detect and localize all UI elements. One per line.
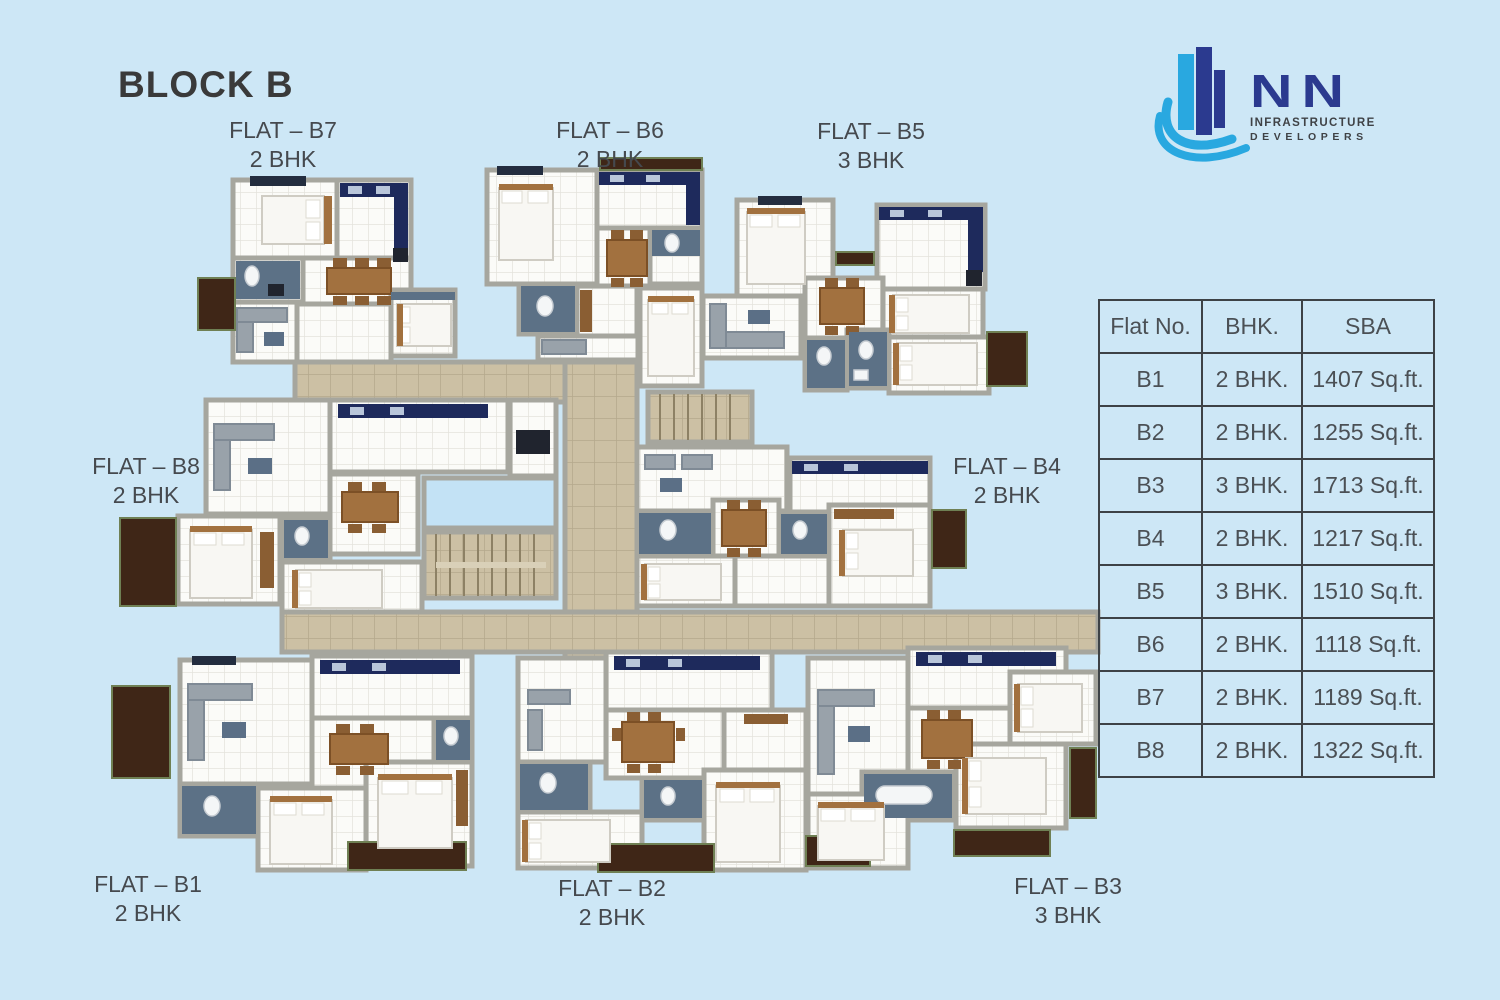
flat-b2-plan [518, 652, 806, 872]
flat-b8-type: 2 BHK [92, 481, 200, 510]
logo-tagline-1: INFRASTRUCTURE [1250, 117, 1376, 129]
table-row: B6 2 BHK. 1118 Sq.ft. [1099, 618, 1434, 671]
cell-flat: B6 [1099, 618, 1202, 671]
flat-b1-type: 2 BHK [94, 899, 202, 928]
page-title: BLOCK B [118, 64, 294, 106]
table-row: B2 2 BHK. 1255 Sq.ft. [1099, 406, 1434, 459]
cell-sba: 1322 Sq.ft. [1302, 724, 1434, 777]
header-flat-no: Flat No. [1099, 300, 1202, 353]
cell-flat: B8 [1099, 724, 1202, 777]
flat-label-b6: FLAT – B6 2 BHK [556, 116, 664, 174]
cell-sba: 1217 Sq.ft. [1302, 512, 1434, 565]
cell-bhk: 2 BHK. [1202, 353, 1302, 406]
table-row: B3 3 BHK. 1713 Sq.ft. [1099, 459, 1434, 512]
flat-b7-type: 2 BHK [229, 145, 337, 174]
cell-sba: 1118 Sq.ft. [1302, 618, 1434, 671]
flat-b2-name: FLAT – B2 [558, 874, 666, 903]
logo-tagline-2: DEVELOPERS [1250, 131, 1376, 143]
table-row: B1 2 BHK. 1407 Sq.ft. [1099, 353, 1434, 406]
table-row: B5 3 BHK. 1510 Sq.ft. [1099, 565, 1434, 618]
flat-b6-plan [487, 158, 702, 386]
spec-table-header-row: Flat No. BHK. SBA [1099, 300, 1434, 353]
cell-sba: 1713 Sq.ft. [1302, 459, 1434, 512]
cell-bhk: 3 BHK. [1202, 565, 1302, 618]
flat-b8-name: FLAT – B8 [92, 452, 200, 481]
header-bhk: BHK. [1202, 300, 1302, 353]
flat-b7-name: FLAT – B7 [229, 116, 337, 145]
flat-b1-name: FLAT – B1 [94, 870, 202, 899]
table-row: B4 2 BHK. 1217 Sq.ft. [1099, 512, 1434, 565]
buildings-swoosh-icon [1152, 42, 1252, 170]
flat-label-b3: FLAT – B3 3 BHK [1014, 872, 1122, 930]
flat-label-b4: FLAT – B4 2 BHK [953, 452, 1061, 510]
cell-bhk: 2 BHK. [1202, 618, 1302, 671]
flat-label-b7: FLAT – B7 2 BHK [229, 116, 337, 174]
cell-flat: B3 [1099, 459, 1202, 512]
cell-bhk: 2 BHK. [1202, 512, 1302, 565]
logo-company-name: NN [1250, 68, 1411, 114]
cell-flat: B1 [1099, 353, 1202, 406]
company-logo: NN INFRASTRUCTURE DEVELOPERS [1152, 42, 1392, 172]
flat-b5-plan [703, 196, 1027, 393]
flat-b1-plan [112, 656, 472, 870]
flat-b3-type: 3 BHK [1014, 901, 1122, 930]
cell-flat: B7 [1099, 671, 1202, 724]
table-row: B8 2 BHK. 1322 Sq.ft. [1099, 724, 1434, 777]
flat-b3-name: FLAT – B3 [1014, 872, 1122, 901]
flat-b7-plan [198, 176, 455, 362]
cell-bhk: 2 BHK. [1202, 406, 1302, 459]
flat-label-b8: FLAT – B8 2 BHK [92, 452, 200, 510]
flat-label-b2: FLAT – B2 2 BHK [558, 874, 666, 932]
logo-text: NN INFRASTRUCTURE DEVELOPERS [1250, 68, 1376, 143]
cell-sba: 1510 Sq.ft. [1302, 565, 1434, 618]
cell-flat: B5 [1099, 565, 1202, 618]
table-row: B7 2 BHK. 1189 Sq.ft. [1099, 671, 1434, 724]
cell-flat: B2 [1099, 406, 1202, 459]
flat-b3-plan [806, 648, 1096, 868]
flat-b5-type: 3 BHK [817, 146, 925, 175]
flat-b6-type: 2 BHK [556, 145, 664, 174]
cell-bhk: 2 BHK. [1202, 671, 1302, 724]
flat-b2-type: 2 BHK [558, 903, 666, 932]
flat-spec-table: Flat No. BHK. SBA B1 2 BHK. 1407 Sq.ft. … [1098, 299, 1435, 778]
flat-b5-name: FLAT – B5 [817, 117, 925, 146]
flat-label-b1: FLAT – B1 2 BHK [94, 870, 202, 928]
cell-flat: B4 [1099, 512, 1202, 565]
header-sba: SBA [1302, 300, 1434, 353]
cell-bhk: 3 BHK. [1202, 459, 1302, 512]
brochure-page: BLOCK B FLAT – B7 2 BHK FLAT – B6 2 BHK … [0, 0, 1500, 1000]
cell-sba: 1255 Sq.ft. [1302, 406, 1434, 459]
flat-b4-plan [637, 447, 966, 606]
cell-sba: 1189 Sq.ft. [1302, 671, 1434, 724]
flat-b6-name: FLAT – B6 [556, 116, 664, 145]
cell-sba: 1407 Sq.ft. [1302, 353, 1434, 406]
flat-b4-name: FLAT – B4 [953, 452, 1061, 481]
flat-label-b5: FLAT – B5 3 BHK [817, 117, 925, 175]
cell-bhk: 2 BHK. [1202, 724, 1302, 777]
flat-b4-type: 2 BHK [953, 481, 1061, 510]
